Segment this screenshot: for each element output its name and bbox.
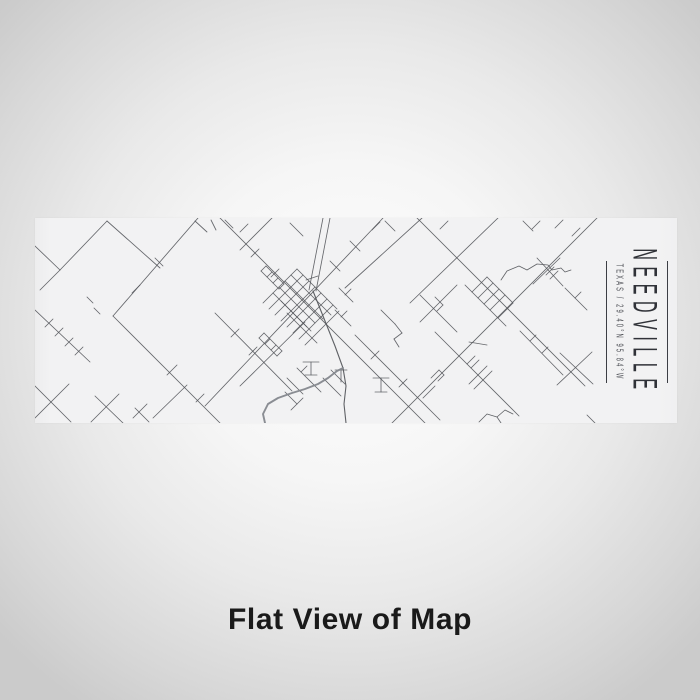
label-rule-left <box>606 261 607 383</box>
map-strip: NEEDVILLE TEXAS / 29.40°N 95.84°W <box>35 218 677 423</box>
label-rule-right <box>667 261 668 383</box>
map-subtitle-text: TEXAS / 29.40°N 95.84°W <box>614 264 625 381</box>
product-stage: NEEDVILLE TEXAS / 29.40°N 95.84°W Flat V… <box>0 0 700 700</box>
view-caption: Flat View of Map <box>0 603 700 637</box>
map-title-text: NEEDVILLE <box>625 248 664 395</box>
road-network <box>35 218 677 423</box>
